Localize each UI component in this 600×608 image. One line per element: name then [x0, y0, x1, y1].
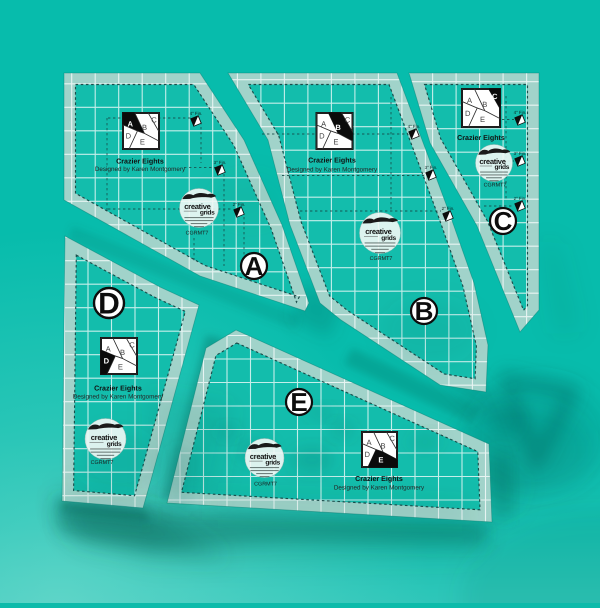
svg-text:C: C: [492, 92, 498, 101]
svg-text:C: C: [389, 434, 395, 443]
svg-text:Crazier Eights: Crazier Eights: [94, 385, 142, 393]
svg-text:Crazier Eights: Crazier Eights: [308, 157, 356, 165]
svg-text:E: E: [333, 137, 338, 146]
svg-text:2″ Fin.: 2″ Fin.: [233, 202, 246, 207]
svg-text:grids: grids: [381, 235, 396, 242]
svg-text:4″ Fin.: 4″ Fin.: [514, 110, 527, 115]
svg-text:CGRMT7: CGRMT7: [186, 231, 209, 237]
svg-text:CGRMT7: CGRMT7: [370, 256, 393, 262]
svg-text:B: B: [142, 123, 147, 132]
svg-text:B: B: [415, 296, 434, 326]
svg-text:B: B: [380, 442, 385, 451]
svg-text:3″ Fin.: 3″ Fin.: [214, 160, 227, 165]
svg-text:B: B: [120, 348, 125, 357]
svg-text:4″ Fin.: 4″ Fin.: [190, 111, 203, 116]
svg-text:Designed by Karen Montgomery: Designed by Karen Montgomery: [73, 394, 164, 401]
svg-text:4″ Fin.: 4″ Fin.: [408, 124, 421, 129]
svg-text:E: E: [118, 362, 123, 371]
svg-text:C: C: [151, 115, 157, 124]
svg-text:Designed by Karen Montgomery: Designed by Karen Montgomery: [334, 485, 425, 492]
svg-text:Crazier Eights: Crazier Eights: [116, 158, 164, 166]
svg-text:Crazier Eights: Crazier Eights: [355, 475, 403, 483]
svg-text:CGRMT7: CGRMT7: [254, 482, 277, 488]
svg-text:grids: grids: [494, 164, 509, 171]
svg-text:B: B: [335, 123, 341, 132]
svg-text:Designed by Karen Montgomery: Designed by Karen Montgomery: [95, 166, 186, 173]
svg-text:E: E: [290, 387, 307, 417]
svg-text:D: D: [98, 288, 120, 321]
svg-text:D: D: [126, 132, 132, 141]
svg-text:grids: grids: [107, 441, 122, 448]
svg-text:2″ Fin.: 2″ Fin.: [442, 206, 455, 211]
svg-text:CGRMT7: CGRMT7: [91, 460, 114, 466]
svg-text:A: A: [245, 251, 264, 281]
svg-text:grids: grids: [265, 459, 280, 466]
svg-text:D: D: [465, 109, 471, 118]
svg-text:C: C: [129, 340, 135, 349]
svg-text:Crazier Eights: Crazier Eights: [457, 134, 505, 142]
svg-text:E: E: [140, 137, 145, 146]
svg-text:D: D: [364, 450, 370, 459]
svg-text:3″ Fin.: 3″ Fin.: [514, 151, 527, 156]
svg-text:Designed by Karen Montgomery: Designed by Karen Montgomery: [287, 167, 378, 174]
svg-text:3″ Fin.: 3″ Fin.: [425, 165, 438, 170]
svg-text:C: C: [345, 115, 351, 124]
svg-text:E: E: [480, 115, 485, 124]
svg-text:2″ Fin.: 2″ Fin.: [514, 196, 527, 201]
svg-text:grids: grids: [200, 209, 215, 216]
svg-text:D: D: [104, 357, 110, 366]
svg-text:A: A: [127, 119, 133, 128]
svg-text:B: B: [482, 100, 487, 109]
svg-text:E: E: [378, 456, 383, 465]
svg-text:D: D: [319, 132, 325, 141]
svg-text:C: C: [494, 206, 513, 236]
svg-text:CGRMT7: CGRMT7: [484, 183, 507, 189]
